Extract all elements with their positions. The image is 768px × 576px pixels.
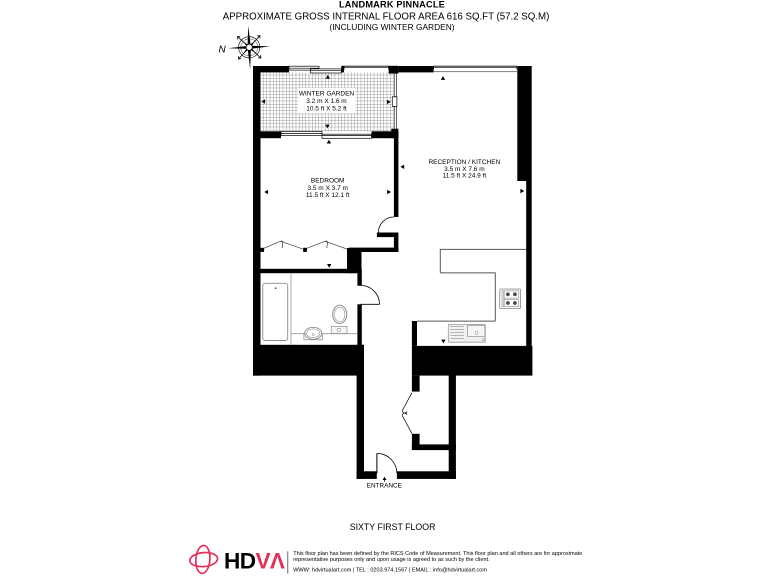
svg-text:WWW: hdvirtualart.com | TEL :: WWW: hdvirtualart.com | TEL : 0203.974.1… bbox=[293, 568, 487, 574]
svg-text:ENTRANCE: ENTRANCE bbox=[367, 483, 402, 490]
svg-text:WINTER GARDEN: WINTER GARDEN bbox=[299, 90, 355, 97]
svg-text:11.5 ft X 12.1 ft: 11.5 ft X 12.1 ft bbox=[306, 192, 350, 199]
svg-text:N: N bbox=[219, 45, 227, 56]
svg-text:APPROXIMATE GROSS INTERNAL FLO: APPROXIMATE GROSS INTERNAL FLOOR AREA 61… bbox=[223, 11, 550, 22]
svg-text:11.5 ft X 24.9 ft: 11.5 ft X 24.9 ft bbox=[443, 173, 487, 180]
svg-text:BEDROOM: BEDROOM bbox=[311, 178, 345, 185]
svg-text:SIXTY FIRST FLOOR: SIXTY FIRST FLOOR bbox=[350, 522, 436, 532]
svg-text:LANDMARK PINNACLE: LANDMARK PINNACLE bbox=[339, 0, 445, 9]
svg-text:3.5 m X 3.7 m: 3.5 m X 3.7 m bbox=[307, 185, 347, 192]
svg-text:(INCLUDING WINTER GARDEN): (INCLUDING WINTER GARDEN) bbox=[329, 22, 454, 32]
svg-text:HDVΛ: HDVΛ bbox=[224, 549, 285, 574]
svg-text:3.2 m X 1.6 m: 3.2 m X 1.6 m bbox=[306, 98, 346, 105]
svg-text:10.5 ft X 5.2 ft: 10.5 ft X 5.2 ft bbox=[306, 105, 347, 112]
svg-text:representative purposes only a: representative purposes only and upon us… bbox=[293, 557, 490, 563]
